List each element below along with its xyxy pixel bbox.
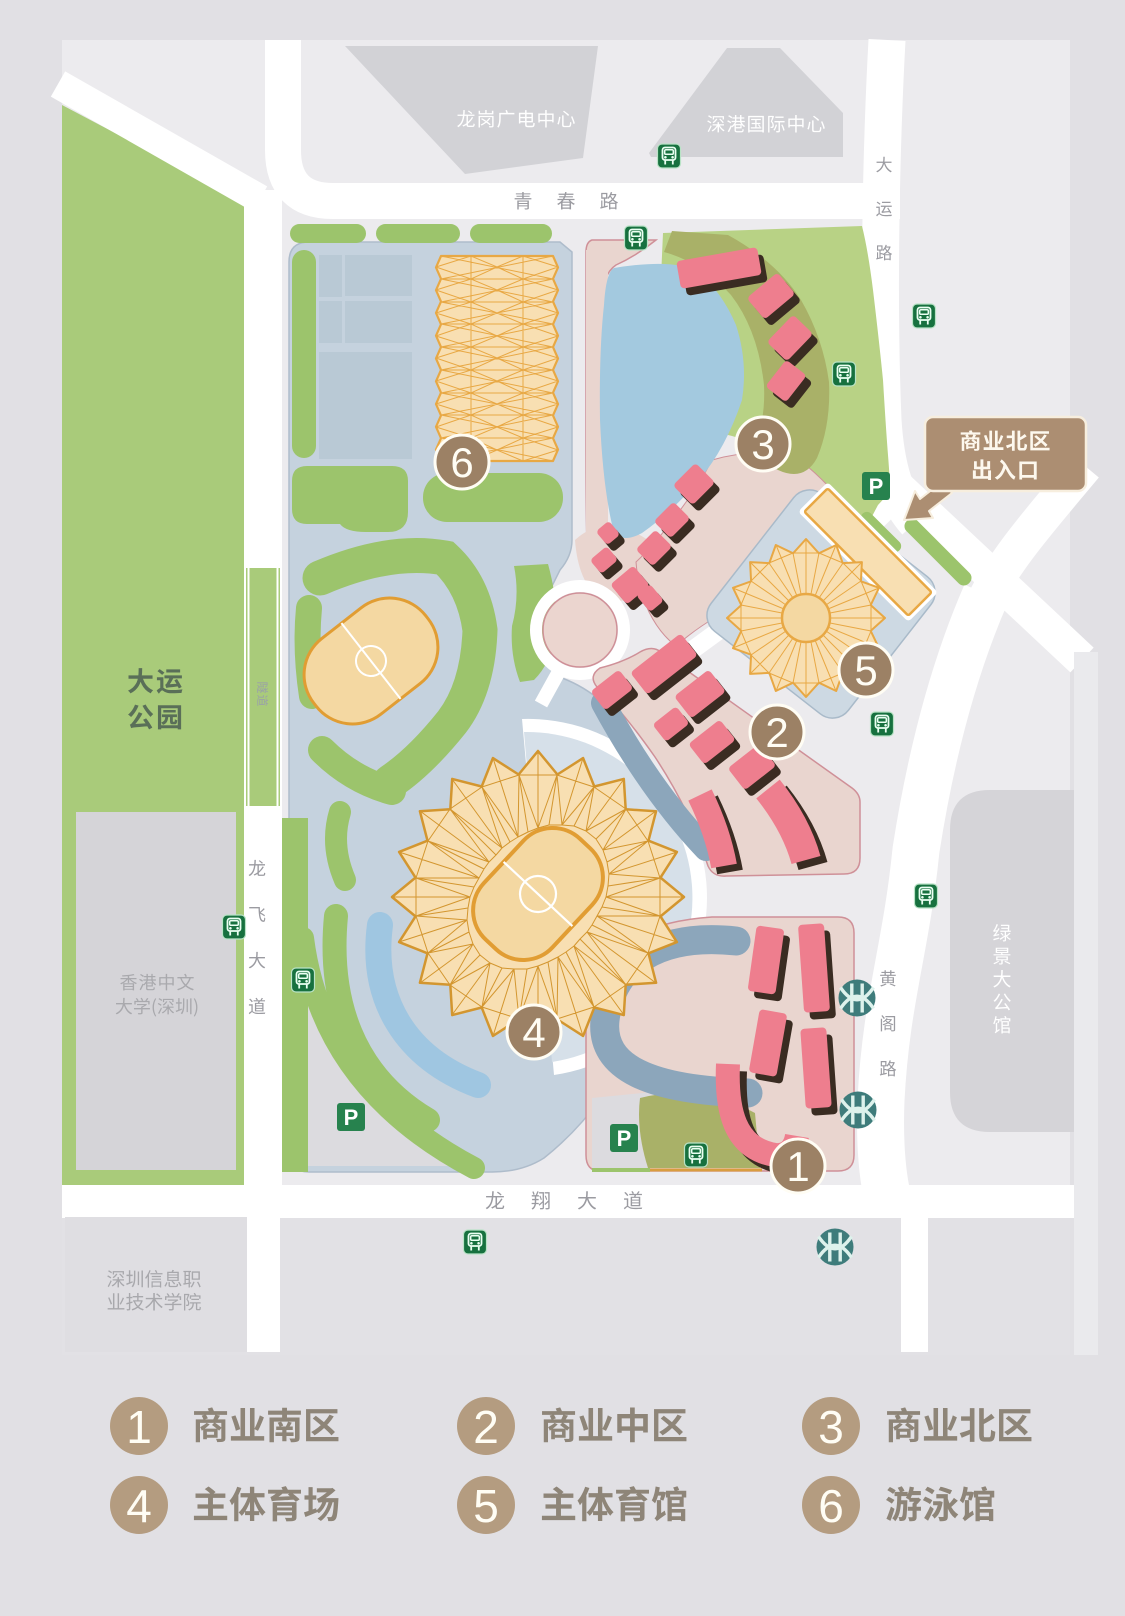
svg-text:6: 6 <box>818 1480 844 1532</box>
svg-text:P: P <box>617 1126 632 1151</box>
svg-text:P: P <box>869 474 884 499</box>
svg-text:3: 3 <box>818 1401 844 1453</box>
svg-text:2: 2 <box>473 1401 499 1453</box>
svg-text:1: 1 <box>126 1401 152 1453</box>
svg-text:5: 5 <box>854 647 877 694</box>
svg-text:1: 1 <box>786 1143 809 1190</box>
svg-text:P: P <box>344 1105 359 1130</box>
svg-text:4: 4 <box>126 1480 152 1532</box>
svg-text:6: 6 <box>450 439 473 486</box>
svg-text:2: 2 <box>765 709 788 756</box>
svg-text:5: 5 <box>473 1480 499 1532</box>
svg-text:3: 3 <box>751 421 774 468</box>
svg-text:4: 4 <box>522 1009 545 1056</box>
